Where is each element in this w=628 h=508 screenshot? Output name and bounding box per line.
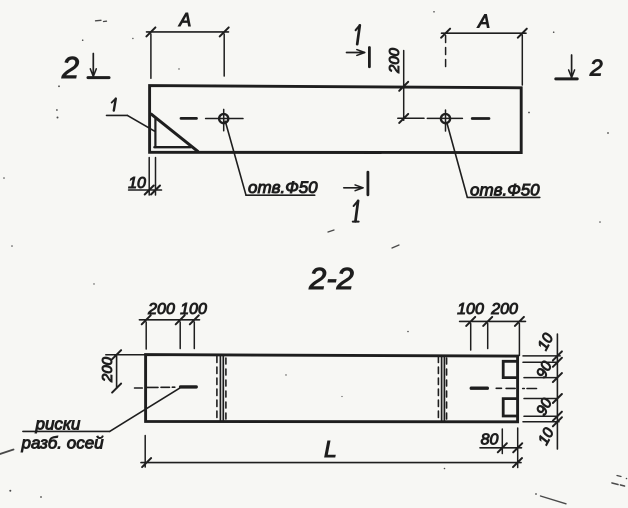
svg-text:2-2: 2-2 [308,261,354,296]
svg-text:200: 200 [99,356,116,383]
svg-text:200: 200 [147,301,175,318]
svg-text:200: 200 [386,47,403,74]
svg-text:10: 10 [128,175,146,192]
svg-text:разб. осей: разб. осей [21,433,105,452]
svg-text:10: 10 [534,330,557,353]
svg-text:L: L [324,436,337,462]
svg-text:риски: риски [35,414,81,433]
svg-text:2: 2 [61,50,79,85]
svg-text:100: 100 [457,301,484,318]
svg-text:2: 2 [589,55,603,81]
svg-text:80: 80 [481,431,499,448]
svg-text:200: 200 [490,301,518,318]
svg-text:отв.Ф50: отв.Ф50 [470,180,540,199]
svg-text:10: 10 [535,425,558,448]
svg-text:100: 100 [180,301,207,318]
svg-text:A: A [178,10,191,30]
svg-text:A: A [477,12,490,32]
svg-text:отв.Ф50: отв.Ф50 [248,178,318,197]
